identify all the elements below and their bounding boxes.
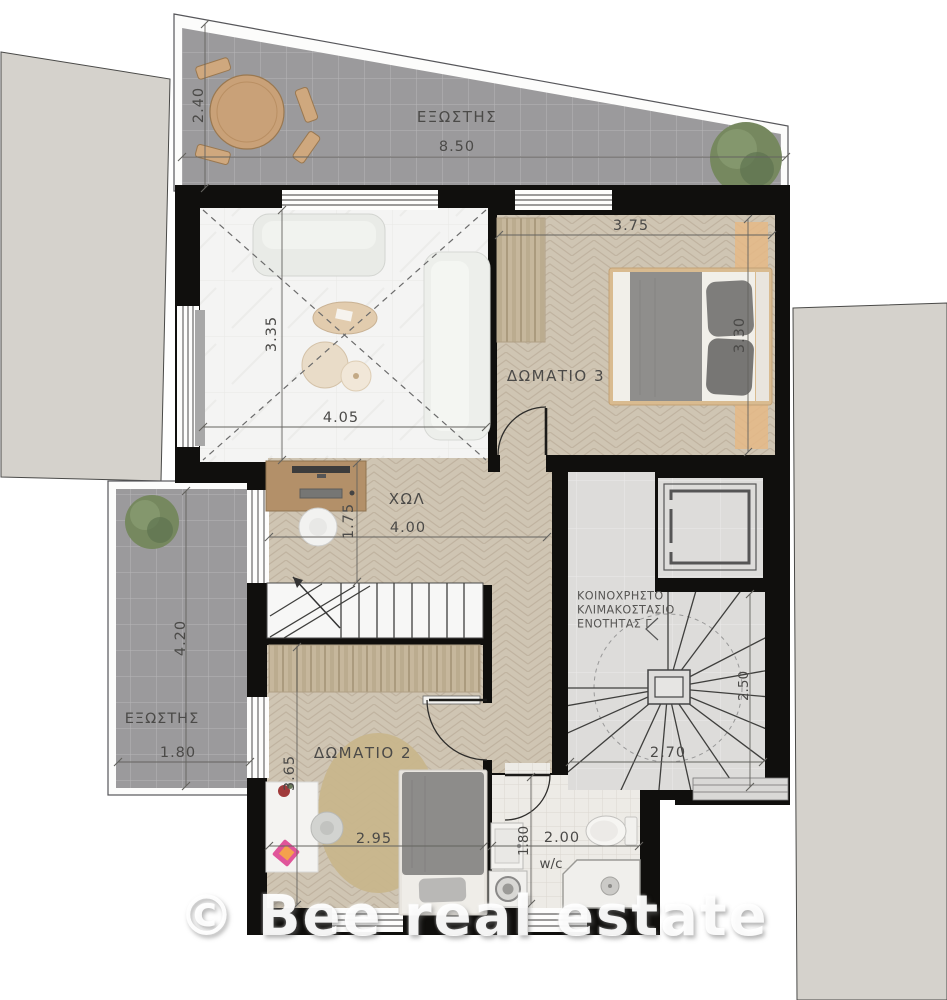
dim-2-40: 2.40: [191, 87, 207, 123]
window: [247, 697, 269, 778]
wc-label: w/c: [539, 856, 562, 872]
floor-plan-drawing: ΕΞΩΣΤΗΣ 8.50 2.40 3.35 4.05 ΔΩΜΑΤΙΟ 3 3.…: [0, 0, 947, 1000]
bedroom2-door-opening: [483, 703, 492, 760]
dim-4-20: 4.20: [173, 620, 189, 656]
dim-2-70: 2.70: [650, 745, 686, 761]
dim-3-75: 3.75: [613, 218, 649, 234]
mouse-icon: [350, 491, 355, 496]
tree-icon: [125, 495, 179, 549]
common-stairs-label-3: ΕΝΟΤΗΤΑΣ Γ: [577, 618, 652, 631]
window: [332, 908, 403, 932]
window: [515, 190, 612, 210]
tv-icon: [195, 310, 205, 446]
single-bed-icon: [399, 770, 487, 915]
window: [528, 908, 587, 932]
hall-label: ΧΩΛ: [389, 490, 426, 508]
stair-landing: [693, 778, 788, 800]
dim-1-75: 1.75: [341, 503, 357, 539]
wardrobe-icon: [269, 645, 480, 692]
washing-machine-icon: [489, 871, 527, 907]
sofa-icon: [424, 252, 490, 440]
common-stairs-label-1: ΚΟΙΝΟΧΡΗΣΤΟ: [577, 590, 664, 603]
wardrobe-icon: [497, 218, 545, 342]
headboard: [756, 272, 769, 401]
dim-1-80-wc: 1.80: [516, 826, 532, 856]
closet-icon: [735, 403, 768, 449]
bedroom2-label: ΔΩΜΑΤΙΟ 2: [314, 744, 412, 762]
dim-2-00: 2.00: [544, 830, 580, 846]
chair-icon: [311, 812, 343, 844]
dim-2-95: 2.95: [356, 831, 392, 847]
dim-3-35: 3.35: [264, 316, 280, 352]
closet-icon: [735, 222, 768, 272]
dim-2-50: 2.50: [736, 671, 752, 701]
neighbor-building-left: [1, 52, 170, 481]
dim-4-00: 4.00: [390, 520, 426, 536]
dim-8-50: 8.50: [439, 139, 475, 155]
pillow-icon: [419, 877, 467, 903]
balcony-left-label: ΕΞΩΣΤΗΣ: [125, 711, 200, 727]
dim-1-80-left: 1.80: [160, 745, 196, 761]
bedroom3-label: ΔΩΜΑΤΙΟ 3: [507, 367, 605, 385]
keyboard-icon: [300, 489, 342, 498]
monitor-icon: [292, 466, 350, 473]
internal-staircase: [267, 577, 483, 638]
desk-icon: [266, 782, 318, 872]
dim-4-05: 4.05: [323, 410, 359, 426]
balcony-top-label: ΕΞΩΣΤΗΣ: [417, 108, 497, 126]
balcony-top: [174, 14, 788, 194]
floor-plan: ΕΞΩΣΤΗΣ 8.50 2.40 3.35 4.05 ΔΩΜΑΤΙΟ 3 3.…: [0, 0, 947, 1000]
window: [282, 190, 438, 210]
corridor-floor: [492, 585, 552, 773]
tree-icon: [710, 122, 782, 194]
dim-3-30: 3.30: [732, 317, 748, 353]
dim-3-65: 3.65: [282, 755, 298, 791]
toilet-icon: [586, 816, 637, 846]
sofa-icon: [253, 214, 385, 276]
office-chair-icon: [299, 508, 337, 546]
hall-floor-east: [488, 472, 552, 585]
bedroom3-door-opening: [500, 455, 546, 474]
common-stairs-label-2: ΚΛΙΜΑΚΟΣΤΑΣΙΟ: [577, 604, 675, 617]
shower-icon: [563, 860, 640, 908]
neighbor-building-right: [793, 303, 947, 1000]
